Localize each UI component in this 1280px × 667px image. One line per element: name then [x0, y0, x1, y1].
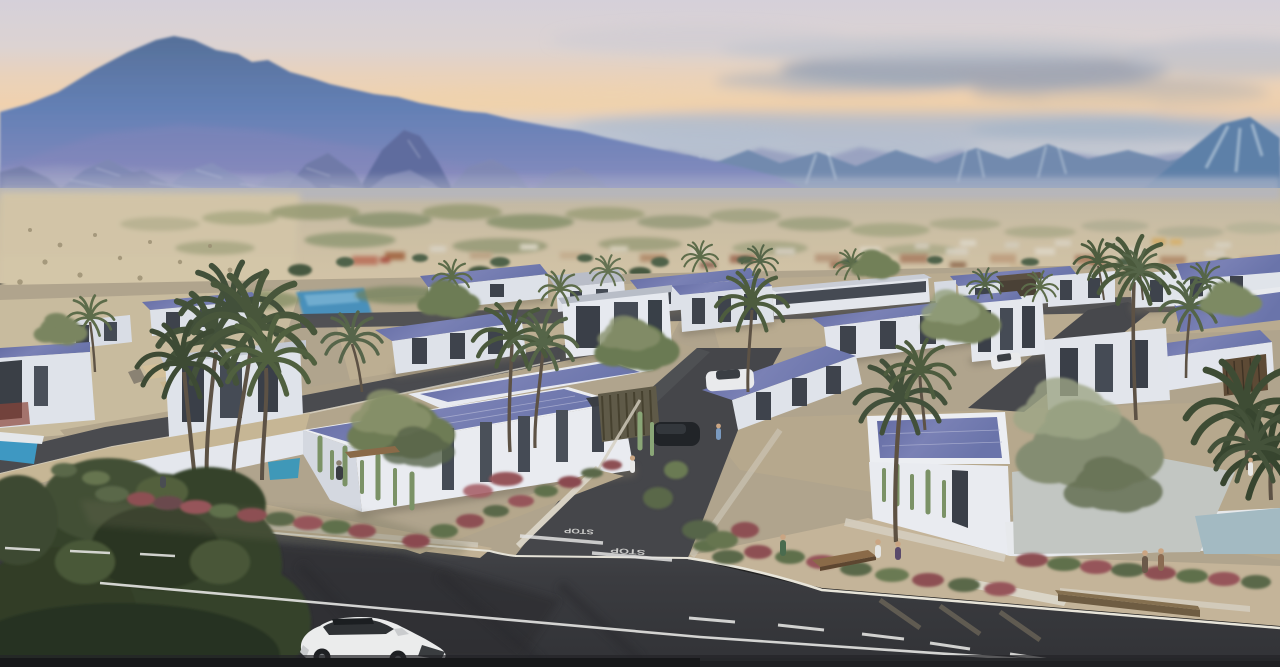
- svg-text:STOP: STOP: [564, 527, 594, 536]
